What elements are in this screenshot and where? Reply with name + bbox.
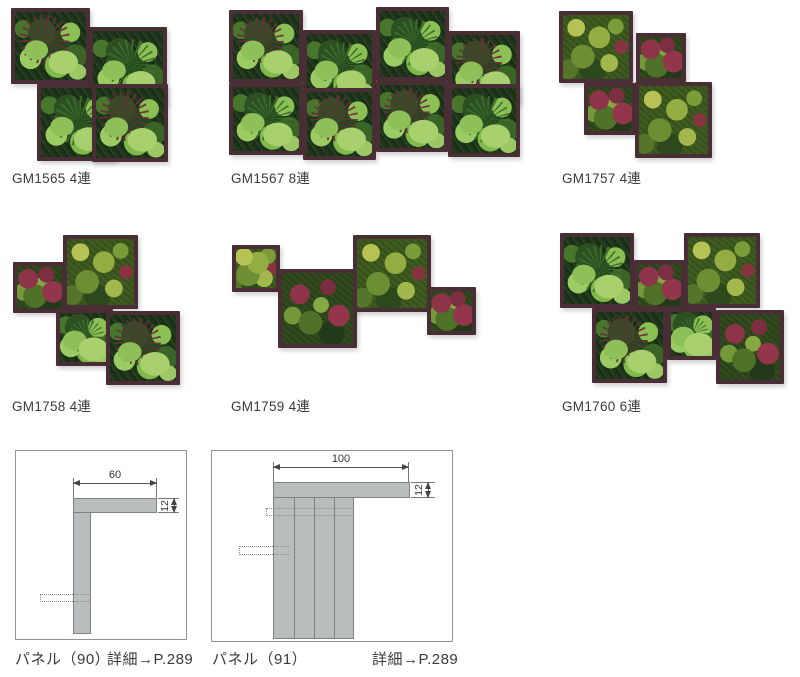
greenery-panel-tile: [92, 84, 168, 162]
greenery-panel-tile: [13, 262, 66, 313]
mounting-dashed-outline: [40, 594, 91, 602]
product-code-label: GM1567 8連: [231, 167, 310, 187]
product-code-label: GM1758 4連: [12, 395, 91, 415]
greenery-panel-tile: [11, 8, 90, 84]
product-code-label: GM1565 4連: [12, 167, 91, 187]
panel-face-cross-section: [73, 498, 157, 513]
greenery-panel-tile: [427, 287, 476, 335]
greenery-panel-tile: [229, 10, 303, 83]
width-dimension-value: 60: [73, 469, 157, 481]
greenery-panel-tile: [56, 309, 113, 366]
panel-side-cross-section: [73, 512, 91, 634]
panel-90-caption: パネル（90）: [15, 648, 110, 669]
greenery-panel-tile: [716, 310, 784, 384]
greenery-panel-tile: [63, 235, 138, 309]
panel-91-caption: パネル（91）: [212, 648, 307, 669]
product-code-label: GM1757 4連: [562, 167, 641, 187]
width-dimension-line: [73, 483, 157, 484]
greenery-panel-tile: [592, 308, 667, 383]
thickness-dimension-value: 12: [157, 497, 172, 514]
greenery-panel-tile: [559, 11, 633, 83]
greenery-panel-tile: [278, 269, 357, 348]
panel-90-diagram: 60 12: [15, 450, 187, 640]
greenery-panel-tile: [376, 7, 449, 81]
greenery-panel-tile: [106, 311, 180, 385]
catalog-page: GM1565 4連GM1567 8連GM1757 4連GM1758 4連GM17…: [0, 0, 800, 677]
greenery-panel-tile: [232, 245, 280, 292]
greenery-panel-tile: [635, 82, 712, 158]
greenery-panel-tile: [634, 260, 685, 310]
panel-91-detail-reference: 詳細→P.289: [372, 648, 458, 669]
width-dimension-value: 100: [273, 453, 409, 465]
mounting-dashed-outline: [239, 546, 289, 555]
greenery-panel-tile: [667, 308, 716, 360]
panel-91-diagram: 100 12: [211, 450, 453, 642]
greenery-panel-tile: [303, 88, 376, 160]
greenery-panel-tile: [229, 83, 303, 155]
greenery-panel-tile: [448, 84, 520, 157]
greenery-panel-tile: [636, 33, 686, 82]
greenery-panel-tile: [684, 233, 760, 308]
rib-divider-line: [334, 498, 335, 638]
rib-divider-line: [314, 498, 315, 638]
greenery-panel-tile: [376, 81, 448, 152]
panel-90-detail-reference: 詳細→P.289: [107, 648, 193, 669]
rib-divider-line: [294, 498, 295, 638]
greenery-panel-tile: [353, 235, 431, 312]
product-code-label: GM1760 6連: [562, 395, 641, 415]
panel-face-cross-section: [273, 482, 410, 498]
greenery-panel-tile: [560, 233, 634, 308]
greenery-panel-tile: [584, 83, 636, 135]
width-dimension-line: [273, 467, 409, 468]
joint-dashed-outline: [266, 508, 354, 516]
thickness-dimension-value: 12: [411, 481, 426, 499]
product-code-label: GM1759 4連: [231, 395, 310, 415]
